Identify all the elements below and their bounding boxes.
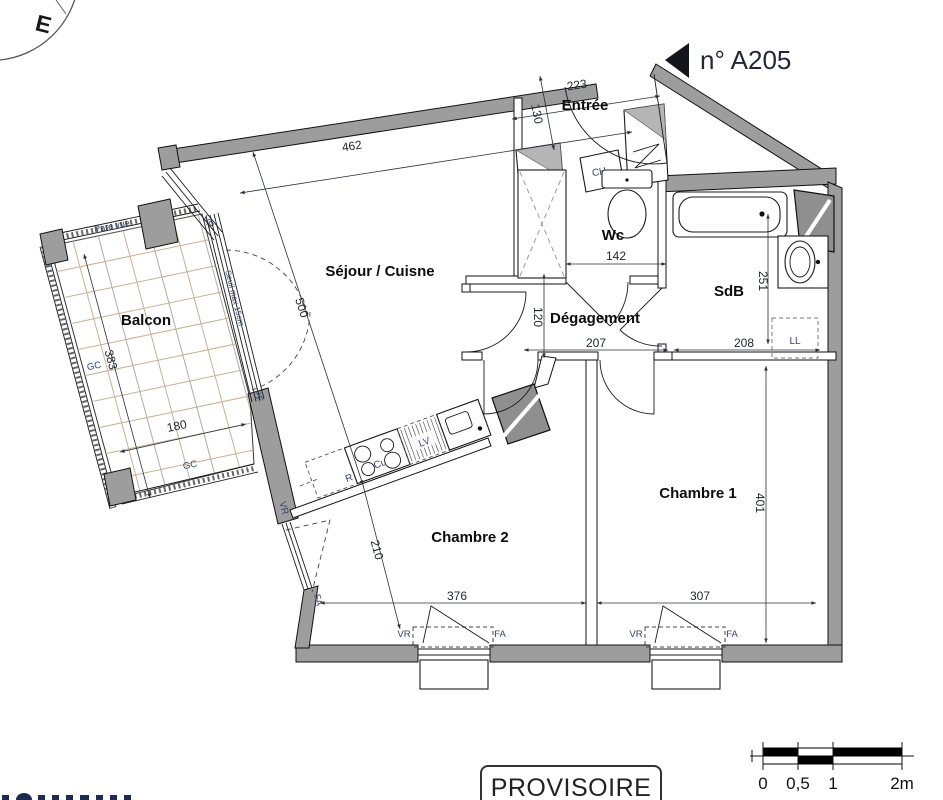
window-sill-2 xyxy=(652,660,720,689)
washer-label: LL xyxy=(789,336,801,347)
room-label-wc: Wc xyxy=(602,227,625,244)
room-label-sejour-cuisine: Séjour / Cuisne xyxy=(325,263,434,280)
fa-label-win1: FA xyxy=(494,629,506,640)
wall-sejour-jamb xyxy=(462,284,470,292)
dim-142: 142 xyxy=(606,249,626,263)
room-label-degagement: Dégagement xyxy=(550,310,640,327)
washbasin-faucet xyxy=(816,260,820,264)
dim-208: 208 xyxy=(734,336,754,350)
scale-tick-1: 1 xyxy=(828,774,837,793)
wall-deg-south-3 xyxy=(654,352,672,360)
dim-251: 251 xyxy=(756,271,770,291)
wall-wc-sdb xyxy=(658,170,666,288)
floor-plan-svg: E n° A205 xyxy=(0,0,943,800)
wall-south-3 xyxy=(722,645,842,662)
unit-header: n° A205 xyxy=(665,43,791,78)
wall-south-2 xyxy=(490,645,650,662)
wall-south-1 xyxy=(296,645,418,662)
wall-chambre1-chambre2 xyxy=(586,360,597,645)
window-sill-1 xyxy=(420,660,488,689)
toilet-button xyxy=(625,178,628,181)
bathtub-faucet xyxy=(759,211,764,216)
dim-307: 307 xyxy=(690,589,710,603)
fa-label-win2: FA xyxy=(726,629,738,640)
wall-east xyxy=(828,182,842,662)
room-label-sdb: SdB xyxy=(714,283,744,300)
scale-tick-0: 0 xyxy=(758,774,767,793)
scale-tick-2m: 2m xyxy=(890,774,914,793)
room-label-chambre2: Chambre 2 xyxy=(431,529,509,546)
dim-376: 376 xyxy=(447,589,467,603)
wall-north-end-cap xyxy=(158,145,180,170)
balcony-pier-sw xyxy=(104,468,136,506)
dim-120: 120 xyxy=(531,307,545,327)
stamp-label: PROVISOIRE xyxy=(491,774,652,800)
room-label-entree: Entrée xyxy=(562,97,609,114)
vr-label-win2: VR xyxy=(629,629,642,640)
unit-number-label: n° A205 xyxy=(700,45,791,75)
bathtub-inner xyxy=(679,197,780,232)
vr-label-win1: VR xyxy=(397,629,410,640)
scale-tick-05: 0,5 xyxy=(786,774,810,793)
room-label-chambre1: Chambre 1 xyxy=(659,485,737,502)
wall-deg-south-1 xyxy=(462,352,482,360)
wall-sdb-chambre1 xyxy=(672,352,836,360)
stamp: PROVISOIRE xyxy=(481,766,661,800)
floor-plan-page: E n° A205 xyxy=(0,0,943,800)
dim-207: 207 xyxy=(586,336,606,350)
dim-401: 401 xyxy=(753,493,767,513)
room-label-balcon: Balcon xyxy=(121,312,171,329)
